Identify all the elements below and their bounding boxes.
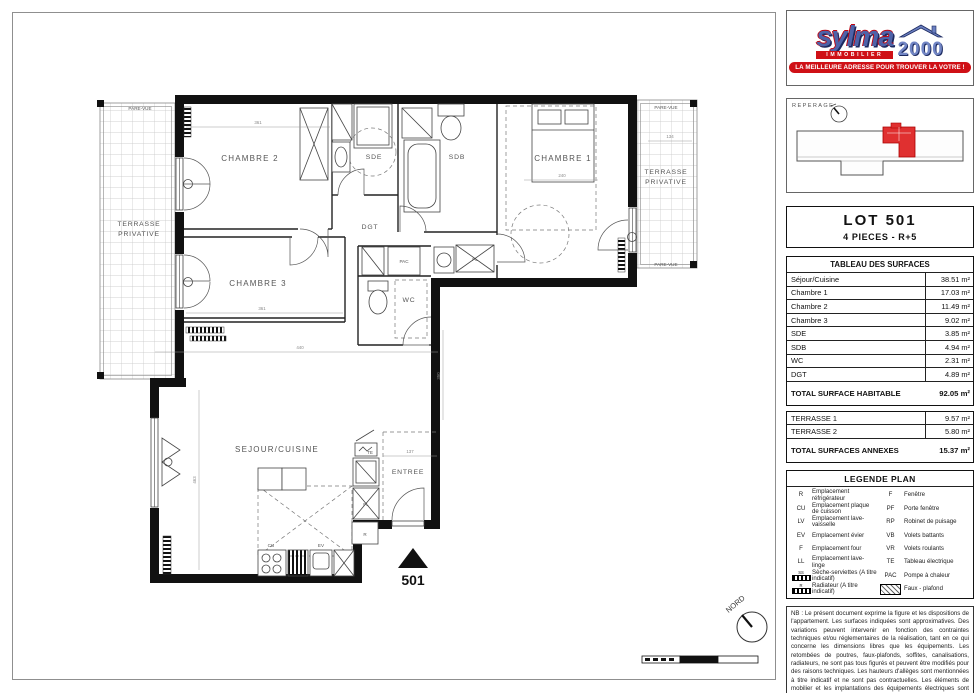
table-row: Chambre 39.02 m² bbox=[787, 314, 973, 328]
room-label-dgt: DGT bbox=[362, 224, 379, 231]
table-row: Chambre 117.03 m² bbox=[787, 287, 973, 301]
legal-notice: NB : Le présent document exprime la figu… bbox=[786, 606, 974, 693]
false-ceiling-icon bbox=[880, 584, 901, 595]
terrace-left-label-2: PRIVATIVE bbox=[118, 231, 160, 238]
equip-label-pl2: PL bbox=[363, 502, 369, 507]
lot-entrance-marker: 501 bbox=[398, 548, 428, 588]
dim-chambre2: 361 bbox=[254, 120, 262, 125]
dim-sejour-w: 440 bbox=[296, 345, 304, 350]
dim-entree: 137 bbox=[406, 449, 414, 454]
dim-hall-h: 350 bbox=[436, 372, 441, 380]
surfaces-table: TABLEAU DES SURFACES Séjour/Cuisine38.51… bbox=[786, 256, 974, 406]
logo-year-text: 2000 bbox=[897, 41, 943, 58]
title-block-sidebar: sylma IMMOBILIER 2000 LA MEILLEURE ADRES… bbox=[786, 10, 974, 693]
equip-label-ev: EV bbox=[318, 543, 325, 548]
agency-logo: sylma IMMOBILIER 2000 LA MEILLEURE ADRES… bbox=[786, 10, 974, 86]
total-habitable-row: TOTAL SURFACE HABITABLE92.05 m² bbox=[787, 382, 973, 405]
north-compass-icon: NORD bbox=[724, 593, 767, 642]
table-row: TERRASSE 25.80 m² bbox=[787, 425, 973, 439]
logo-sub-text: IMMOBILIER bbox=[816, 51, 893, 59]
dim-terrasse2: 134 bbox=[666, 134, 674, 139]
reperage-panel: REPERAGE bbox=[786, 98, 974, 193]
room-label-sejour: SEJOUR/CUISINE bbox=[235, 445, 319, 454]
table-row: Séjour/Cuisine38.51 m² bbox=[787, 273, 973, 287]
room-label-chambre-3: CHAMBRE 3 bbox=[229, 279, 286, 288]
terrace-left-label-1: TERRASSE bbox=[117, 221, 160, 228]
equip-label-te: TE bbox=[367, 450, 373, 455]
reperage-minimap bbox=[787, 99, 973, 192]
table-row: WC2.31 m² bbox=[787, 355, 973, 369]
pare-vue-label-1: PARE-VUE bbox=[128, 106, 151, 111]
terrace-left bbox=[97, 100, 175, 379]
table-row: SDB4.94 m² bbox=[787, 341, 973, 355]
floor-plan: CHAMBRE 2 CHAMBRE 3 CHAMBRE 1 SDE SDB WC… bbox=[0, 0, 782, 693]
floor-plan-sheet: CHAMBRE 2 CHAMBRE 3 CHAMBRE 1 SDE SDB WC… bbox=[0, 0, 980, 693]
room-label-wc: WC bbox=[403, 297, 416, 304]
total-annexes-row: TOTAL SURFACES ANNEXES15.37 m² bbox=[787, 439, 973, 462]
equip-label-pac: PAC bbox=[399, 259, 409, 264]
legend-panel: LEGENDE PLAN REmplacement réfrigérateurF… bbox=[786, 470, 974, 599]
annexes-table: TERRASSE 19.57 m² TERRASSE 25.80 m² TOTA… bbox=[786, 411, 974, 463]
north-label: NORD bbox=[724, 593, 747, 614]
logo-tagline: LA MEILLEURE ADRESSE POUR TROUVER LA VOT… bbox=[789, 62, 970, 73]
room-label-sdb: SDB bbox=[449, 154, 465, 161]
reperage-title: REPERAGE bbox=[792, 103, 834, 109]
equip-label-cu: CU bbox=[268, 543, 275, 548]
pare-vue-label-3: PARE-VUE bbox=[654, 262, 677, 267]
terrace-right-label-2: PRIVATIVE bbox=[645, 179, 687, 186]
lot-marker-number: 501 bbox=[401, 572, 425, 588]
dim-bed: 240 bbox=[558, 173, 566, 178]
scale-bar bbox=[642, 656, 758, 663]
pare-vue-label-2: PARE-VUE bbox=[654, 105, 677, 110]
table-row: DGT4.89 m² bbox=[787, 368, 973, 382]
radiator-icon: R bbox=[792, 584, 811, 594]
terrace-right-label-1: TERRASSE bbox=[644, 169, 687, 176]
lot-type: 4 PIECES - R+5 bbox=[787, 232, 973, 242]
room-label-chambre-2: CHAMBRE 2 bbox=[221, 154, 278, 163]
fixtures bbox=[162, 104, 625, 576]
legend-title: LEGENDE PLAN bbox=[787, 471, 973, 487]
room-label-chambre-1: CHAMBRE 1 bbox=[534, 154, 591, 163]
lot-header: LOT 501 4 PIECES - R+5 bbox=[786, 206, 974, 248]
dim-chambre3: 361 bbox=[258, 306, 266, 311]
table-row: SDE3.85 m² bbox=[787, 327, 973, 341]
surfaces-table-header: TABLEAU DES SURFACES bbox=[787, 257, 973, 273]
table-row: TERRASSE 19.57 m² bbox=[787, 412, 973, 426]
lot-number: LOT 501 bbox=[787, 212, 973, 229]
room-label-entree: ENTREE bbox=[392, 469, 424, 476]
logo-brand-text: sylma bbox=[816, 26, 893, 49]
dim-sejour-h: 463 bbox=[192, 476, 197, 484]
towel-dryer-icon: SS bbox=[792, 571, 811, 581]
table-row: Chambre 211.49 m² bbox=[787, 300, 973, 314]
room-label-sde: SDE bbox=[366, 154, 382, 161]
equip-label-pl: PL bbox=[472, 257, 478, 262]
